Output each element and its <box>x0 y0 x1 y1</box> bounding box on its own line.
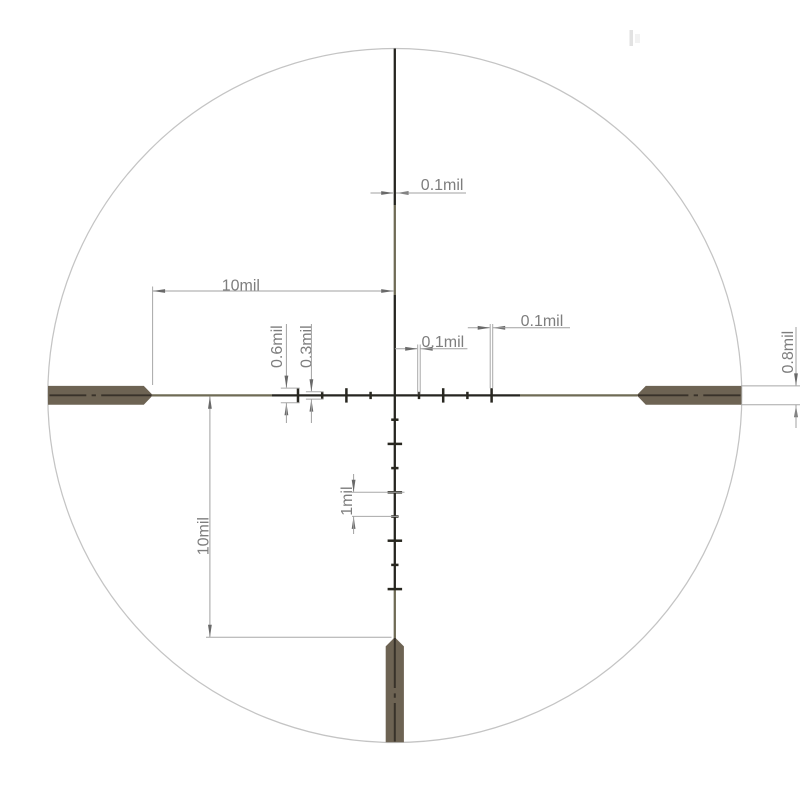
svg-text:0.1mil: 0.1mil <box>521 313 564 330</box>
svg-text:0.6mil: 0.6mil <box>269 325 286 368</box>
svg-text:0.1mil: 0.1mil <box>421 177 464 194</box>
svg-text:0.3mil: 0.3mil <box>298 325 315 368</box>
svg-text:0.1mil: 0.1mil <box>422 334 465 351</box>
svg-text:10mil: 10mil <box>222 277 260 294</box>
svg-text:1mil: 1mil <box>339 486 356 515</box>
svg-text:10mil: 10mil <box>196 517 213 555</box>
svg-text:0.8mil: 0.8mil <box>780 331 797 374</box>
